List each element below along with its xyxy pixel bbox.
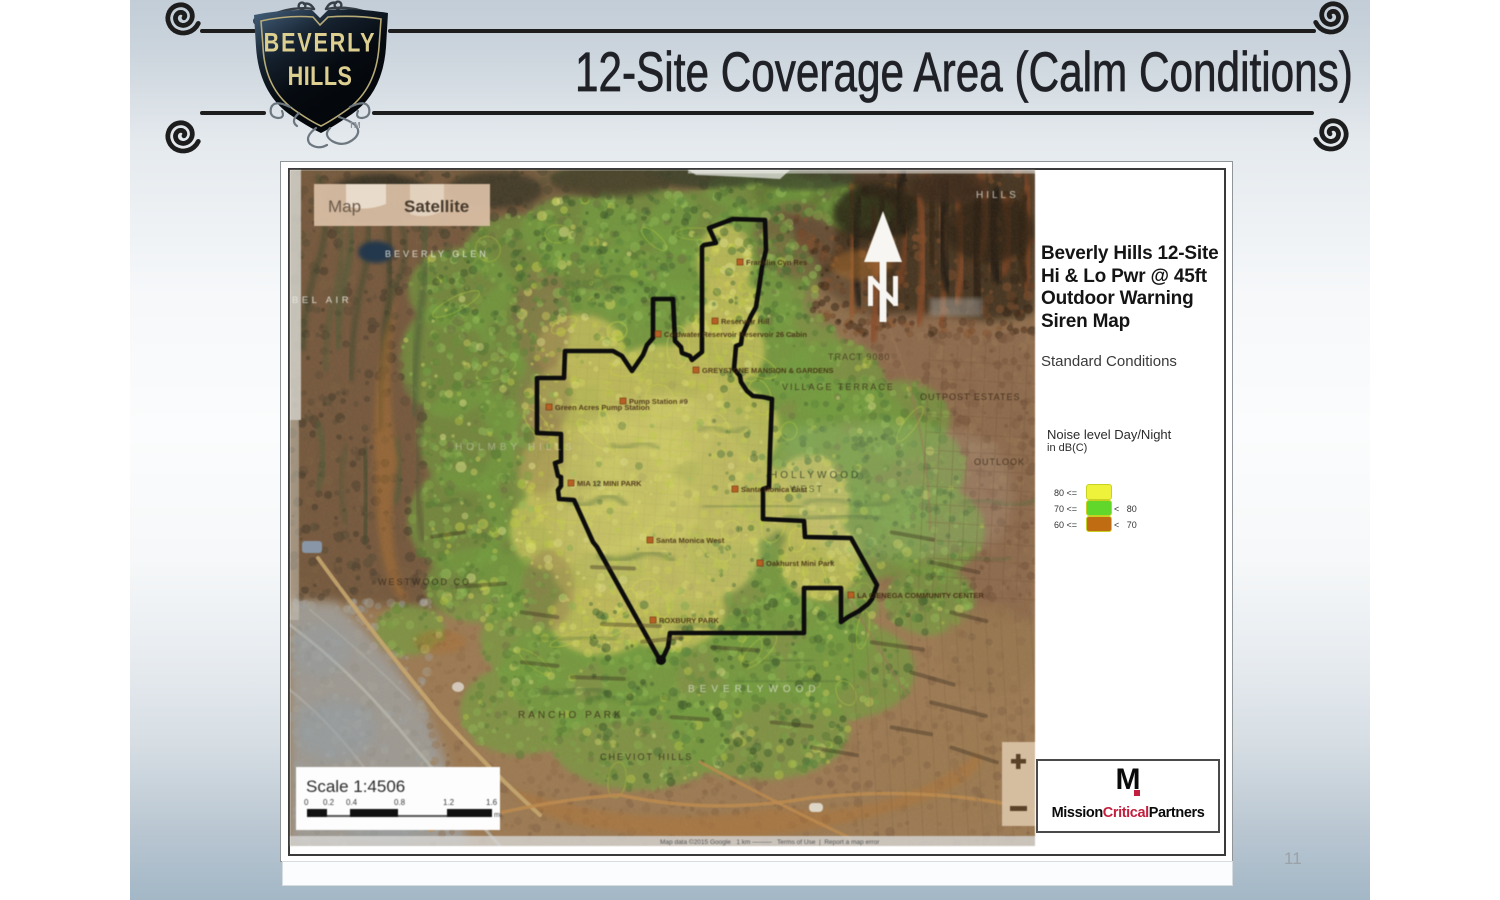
svg-text:HILLS: HILLS	[288, 62, 353, 92]
svg-text:TM: TM	[349, 121, 361, 130]
svg-text:BEVERLY: BEVERLY	[264, 28, 377, 58]
